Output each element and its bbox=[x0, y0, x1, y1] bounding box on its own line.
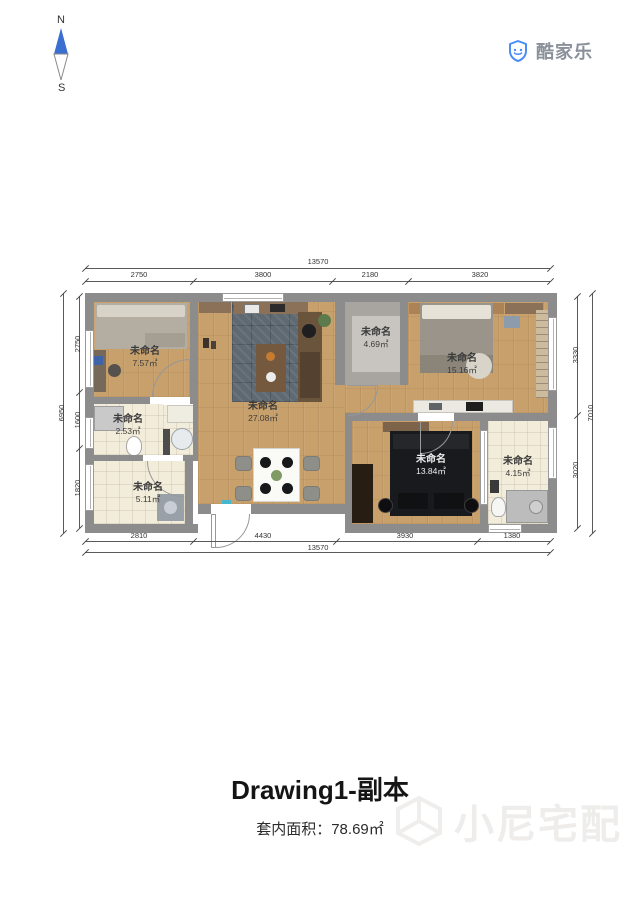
dim-left-1: 2750 bbox=[73, 314, 85, 374]
room-area: 15.16㎡ bbox=[420, 365, 504, 376]
floor-mat bbox=[504, 316, 520, 328]
dim-line-bottom-segments bbox=[85, 541, 550, 542]
blanket-fold bbox=[434, 493, 464, 509]
dim-top-4: 3820 bbox=[450, 270, 510, 279]
room-name: 未命名 bbox=[106, 481, 190, 494]
plate bbox=[260, 457, 271, 468]
room-area: 4.69㎡ bbox=[334, 339, 418, 350]
room-name: 未命名 bbox=[103, 345, 187, 358]
dim-bottom-2: 4430 bbox=[233, 531, 293, 540]
desk-monitor bbox=[94, 356, 103, 365]
toilet bbox=[491, 497, 506, 517]
side-table bbox=[464, 498, 479, 513]
plate bbox=[266, 372, 276, 382]
room-label: 未命名 15.16㎡ bbox=[420, 352, 504, 376]
shower-area bbox=[506, 490, 548, 523]
dim-top-1: 2750 bbox=[109, 270, 169, 279]
pillows bbox=[422, 305, 491, 319]
dim-right-2: 3020 bbox=[571, 440, 583, 500]
dining-table bbox=[253, 448, 300, 502]
room-name: 未命名 bbox=[86, 413, 170, 426]
kitchen-counter-hall bbox=[413, 400, 513, 413]
kitchen-stove bbox=[270, 304, 285, 312]
room-area: 4.15㎡ bbox=[476, 468, 560, 479]
room-label: 未命名 2.53㎡ bbox=[86, 413, 170, 437]
nightstand bbox=[409, 303, 420, 314]
room-name: 未命名 bbox=[334, 326, 418, 339]
counter-stove bbox=[466, 402, 483, 411]
wall-top bbox=[85, 293, 557, 302]
total-area-text: 套内面积：78.69㎡ bbox=[0, 818, 640, 839]
dim-bottom-total: 13570 bbox=[288, 543, 348, 552]
dining-chair bbox=[235, 456, 252, 471]
kitchen-lower-cabinet bbox=[300, 352, 320, 398]
plate bbox=[282, 483, 293, 494]
shoe-cabinet bbox=[199, 302, 231, 313]
window-right-master bbox=[548, 317, 557, 391]
room-label: 未命名 27.08㎡ bbox=[221, 400, 305, 424]
dim-line-bottom-total bbox=[85, 552, 550, 553]
dim-line-top-segments bbox=[85, 281, 550, 282]
wash-basin bbox=[171, 428, 193, 450]
dim-left-2: 1600 bbox=[73, 390, 85, 450]
dim-left-total: 6950 bbox=[57, 383, 69, 443]
room-label: 未命名 13.84㎡ bbox=[389, 453, 473, 477]
brand-name: 酷家乐 bbox=[536, 38, 593, 64]
wardrobe-hangers bbox=[536, 310, 548, 398]
room-area: 27.08㎡ bbox=[221, 413, 305, 424]
room-label: 未命名 4.15㎡ bbox=[476, 455, 560, 479]
door-opening bbox=[418, 413, 454, 421]
room-name: 未命名 bbox=[476, 455, 560, 468]
room-area: 13.84㎡ bbox=[389, 466, 473, 477]
room-label: 未命名 5.11㎡ bbox=[106, 481, 190, 505]
toilet bbox=[126, 436, 142, 456]
dim-bottom-3: 3930 bbox=[375, 531, 435, 540]
compass-south-label: S bbox=[58, 82, 65, 94]
blanket-fold bbox=[398, 493, 428, 509]
entry-closet bbox=[352, 464, 373, 523]
kujiale-shield-smiley-icon bbox=[506, 39, 530, 63]
pillows bbox=[97, 305, 185, 317]
dim-line-top-total bbox=[85, 268, 550, 269]
dim-bottom-1: 2810 bbox=[109, 531, 169, 540]
wall-bedroom-living bbox=[190, 302, 198, 397]
room-area: 5.11㎡ bbox=[106, 494, 190, 505]
vanity-cabinet bbox=[167, 405, 195, 423]
room-name: 未命名 bbox=[389, 453, 473, 466]
room-name: 未命名 bbox=[221, 400, 305, 413]
dim-top-2: 3800 bbox=[233, 270, 293, 279]
dim-top-total: 13570 bbox=[288, 257, 348, 266]
door-leaf bbox=[420, 421, 421, 454]
room-name: 未命名 bbox=[420, 352, 504, 365]
dining-chair bbox=[235, 486, 252, 501]
plate bbox=[282, 457, 293, 468]
fruit-bowl bbox=[266, 352, 275, 361]
window-left-bedroom bbox=[85, 330, 94, 388]
room-area: 2.53㎡ bbox=[86, 426, 170, 437]
entrance-opening bbox=[211, 504, 251, 514]
nightstand bbox=[493, 303, 504, 314]
plate bbox=[260, 483, 271, 494]
drawing-title: Drawing1-副本 bbox=[0, 770, 640, 807]
dim-bottom-4: 1380 bbox=[482, 531, 542, 540]
room-label: 未命名 7.57㎡ bbox=[103, 345, 187, 369]
floorplan-page: N S 酷家乐 bbox=[0, 0, 640, 905]
counter-sink bbox=[429, 403, 442, 410]
bed-topleft bbox=[95, 303, 187, 349]
dim-top-3: 2180 bbox=[340, 270, 400, 279]
room-label: 未命名 4.69㎡ bbox=[334, 326, 418, 350]
bathroom-fixture bbox=[490, 480, 499, 493]
dim-left-3: 1820 bbox=[73, 458, 85, 518]
room-area: 7.57㎡ bbox=[103, 358, 187, 369]
door-leaf bbox=[189, 359, 190, 397]
wok-pan bbox=[302, 324, 316, 338]
wall-nook-living bbox=[193, 397, 198, 461]
compass-needle-icon bbox=[52, 28, 70, 80]
dim-right-total: 7010 bbox=[586, 383, 598, 443]
kitchen-sink bbox=[244, 304, 260, 314]
wall-living-bedroom bbox=[345, 415, 352, 524]
window-left-utility bbox=[85, 464, 94, 511]
shoes bbox=[211, 341, 216, 349]
side-table bbox=[378, 498, 393, 513]
dining-chair bbox=[303, 486, 320, 501]
door-leaf bbox=[348, 385, 378, 386]
table-plant bbox=[271, 470, 282, 481]
window-top bbox=[222, 293, 284, 302]
compass-north-label: N bbox=[57, 14, 65, 26]
dim-right-1: 3330 bbox=[571, 325, 583, 385]
shower-drain bbox=[529, 500, 543, 514]
shoes bbox=[203, 338, 209, 348]
plant bbox=[318, 314, 331, 327]
kujiale-logo: 酷家乐 bbox=[506, 38, 593, 64]
door-opening bbox=[150, 397, 190, 404]
dining-chair bbox=[303, 456, 320, 471]
